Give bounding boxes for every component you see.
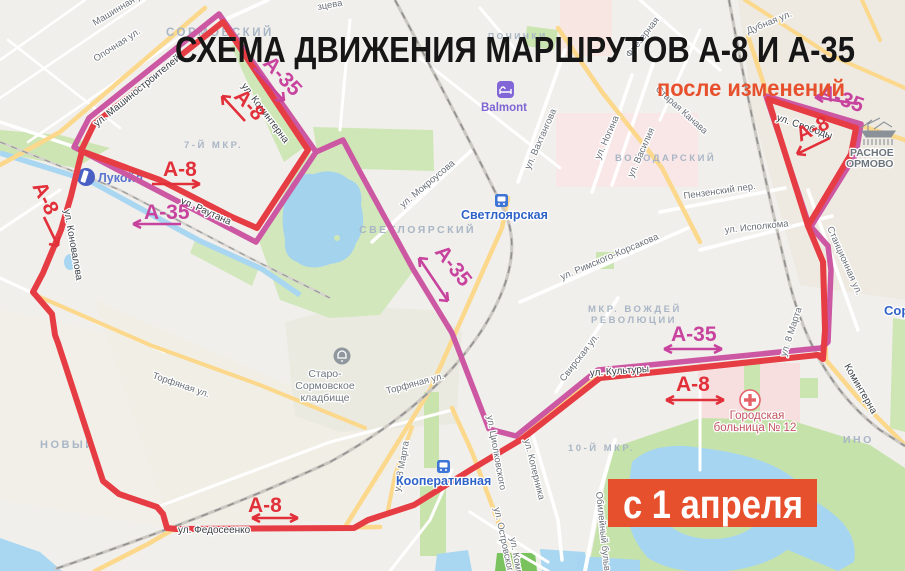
svg-text:СХЕМА ДВИЖЕНИЯ МАРШРУТОВ А-8 И: СХЕМА ДВИЖЕНИЯ МАРШРУТОВ А-8 И А-35	[175, 29, 855, 70]
svg-text:МКР. ВОЖДЕЙ: МКР. ВОЖДЕЙ	[588, 303, 682, 315]
svg-text:Светлоярская: Светлоярская	[461, 208, 548, 222]
svg-text:Сормовское: Сормовское	[295, 380, 355, 392]
svg-text:после изменений: после изменений	[657, 75, 845, 101]
svg-text:РЕВОЛЮЦИИ: РЕВОЛЮЦИИ	[591, 315, 677, 326]
svg-text:7-Й МКР.: 7-Й МКР.	[184, 139, 243, 151]
svg-text:Старо-: Старо-	[308, 368, 342, 380]
svg-text:больница № 12: больница № 12	[714, 422, 797, 434]
svg-text:А-35: А-35	[144, 201, 190, 224]
svg-text:А-8: А-8	[163, 158, 197, 181]
svg-text:ВОЛОДАРСКИЙ: ВОЛОДАРСКИЙ	[615, 152, 716, 164]
svg-text:Balmont: Balmont	[481, 102, 527, 114]
svg-text:СВЕТЛОЯРСКИЙ: СВЕТЛОЯРСКИЙ	[359, 223, 476, 236]
svg-text:Кооперативная: Кооперативная	[396, 474, 491, 488]
svg-text:с 1 апреля: с 1 апреля	[623, 483, 803, 527]
svg-text:ОРМОВО: ОРМОВО	[846, 158, 893, 170]
svg-text:ул. Федосеенко: ул. Федосеенко	[178, 525, 251, 536]
svg-text:Сорм: Сорм	[884, 303, 905, 318]
svg-text:ИНО: ИНО	[843, 434, 874, 446]
svg-text:Городская: Городская	[730, 410, 785, 422]
svg-text:А-35: А-35	[671, 323, 717, 346]
svg-text:А-8: А-8	[676, 373, 710, 396]
svg-text:10-Й МКР.: 10-Й МКР.	[568, 442, 635, 454]
svg-text:А-8: А-8	[248, 494, 282, 517]
svg-text:кладбище: кладбище	[300, 392, 349, 404]
